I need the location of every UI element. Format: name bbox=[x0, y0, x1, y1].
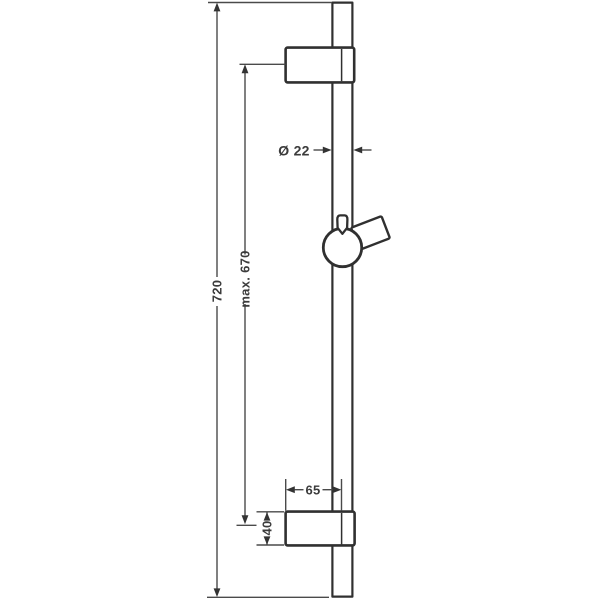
arrow-down-icon bbox=[214, 588, 221, 597]
dim-max-mounting-distance-label: max. 670 bbox=[238, 250, 253, 307]
arrow-left-icon bbox=[286, 486, 295, 493]
dim-overall-height-label: 720 bbox=[210, 280, 225, 303]
arrow-left-icon bbox=[353, 147, 362, 154]
shower-rail-bar bbox=[332, 3, 352, 597]
arrow-down-icon bbox=[242, 515, 249, 524]
top-bracket-body bbox=[286, 48, 355, 83]
top-wall-bracket bbox=[286, 48, 355, 83]
dim-rail-diameter-label: Ø 22 bbox=[278, 143, 310, 159]
dim-wall-offset-label: 65 bbox=[305, 483, 320, 498]
dim-max-mounting-distance: max. 670 bbox=[237, 64, 286, 525]
arrow-up-icon bbox=[214, 3, 221, 12]
dim-bracket-height: 40 bbox=[257, 512, 285, 545]
arrow-up-icon bbox=[264, 512, 271, 520]
drawing-canvas: 720 max. 670 Ø 22 65 40 bbox=[0, 0, 600, 600]
arrow-right-icon bbox=[323, 147, 332, 154]
bottom-wall-bracket bbox=[286, 512, 355, 546]
arrow-up-icon bbox=[242, 64, 249, 73]
slider-release-knob bbox=[337, 215, 347, 233]
dim-overall-height: 720 bbox=[207, 3, 331, 598]
dim-rail-diameter: Ø 22 bbox=[278, 143, 371, 159]
dim-bracket-height-label: 40 bbox=[260, 520, 275, 535]
arrow-down-icon bbox=[264, 536, 271, 544]
technical-drawing: 720 max. 670 Ø 22 65 40 bbox=[0, 0, 600, 600]
bottom-bracket-body bbox=[286, 512, 355, 546]
